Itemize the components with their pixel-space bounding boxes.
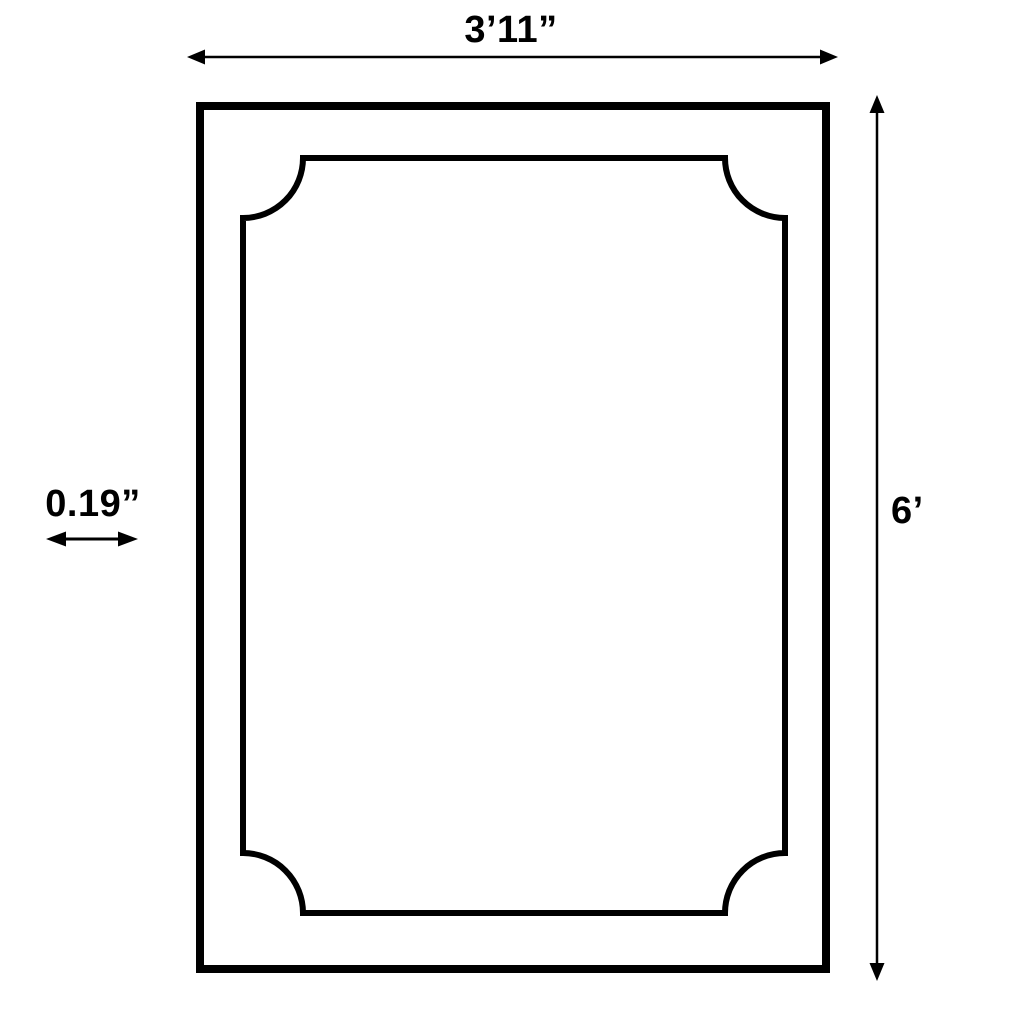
arrow-right-icon [118,532,138,547]
outer-frame-outline [200,106,826,969]
arrow-right-icon [820,50,838,65]
diagram-canvas: 3’11” 6’ 0.19” [0,0,1024,1024]
thickness-dimension-label: 0.19” [23,485,163,525]
arrow-up-icon [870,95,885,113]
height-dimension [870,95,885,981]
arrow-left-icon [187,50,205,65]
height-dimension-label: 6’ [891,492,924,532]
arrow-left-icon [46,532,66,547]
inner-panel-outline [243,158,785,913]
arrow-down-icon [870,963,885,981]
width-dimension-label: 3’11” [361,11,661,51]
width-dimension [187,50,838,65]
thickness-dimension [46,532,138,547]
